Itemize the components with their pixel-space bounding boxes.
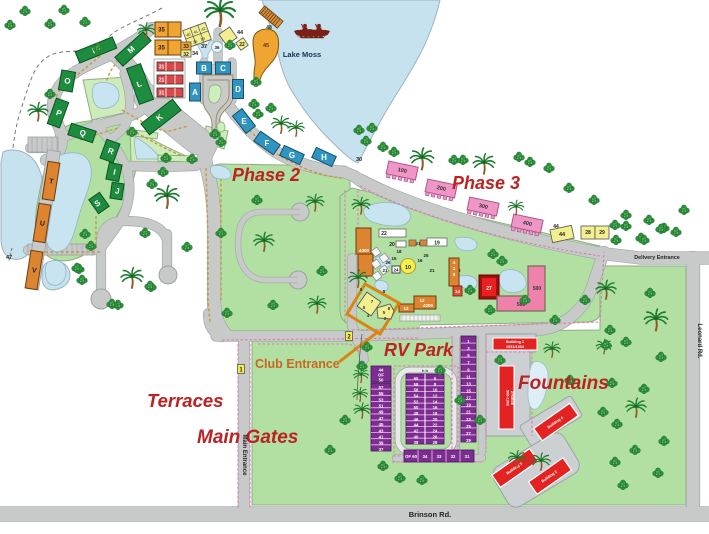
svg-text:28: 28 bbox=[433, 440, 438, 445]
svg-text:31: 31 bbox=[159, 91, 165, 97]
svg-text:Phase 3: Phase 3 bbox=[452, 173, 520, 193]
svg-text:58: 58 bbox=[414, 382, 419, 387]
svg-text:Club Entrance: Club Entrance bbox=[255, 357, 340, 371]
svg-text:20: 20 bbox=[433, 417, 438, 422]
svg-text:Fountains: Fountains bbox=[518, 373, 609, 394]
svg-text:53: 53 bbox=[379, 397, 384, 402]
svg-text:D: D bbox=[235, 85, 241, 94]
svg-text:11: 11 bbox=[466, 374, 471, 379]
svg-text:14: 14 bbox=[433, 399, 438, 404]
svg-text:46: 46 bbox=[414, 417, 419, 422]
svg-text:B: B bbox=[201, 64, 207, 73]
svg-text:Phase 2: Phase 2 bbox=[232, 165, 300, 185]
svg-text:500-1302: 500-1302 bbox=[506, 390, 510, 406]
svg-text:48: 48 bbox=[414, 411, 419, 416]
svg-text:37: 37 bbox=[201, 44, 207, 50]
svg-text:27: 27 bbox=[466, 431, 471, 436]
svg-text:G: G bbox=[289, 151, 295, 160]
svg-text:31: 31 bbox=[159, 65, 165, 71]
svg-text:42: 42 bbox=[414, 428, 419, 433]
svg-text:17: 17 bbox=[466, 396, 471, 401]
svg-text:60: 60 bbox=[414, 376, 419, 381]
svg-text:18: 18 bbox=[433, 411, 438, 416]
svg-text:57: 57 bbox=[379, 385, 384, 390]
svg-text:44: 44 bbox=[237, 30, 244, 36]
svg-text:56: 56 bbox=[414, 388, 419, 393]
svg-text:500: 500 bbox=[533, 286, 542, 292]
svg-text:44: 44 bbox=[559, 232, 566, 238]
svg-text:47: 47 bbox=[379, 416, 384, 421]
svg-text:21: 21 bbox=[159, 78, 165, 84]
svg-text:C: C bbox=[220, 64, 226, 73]
svg-text:29: 29 bbox=[466, 438, 471, 443]
svg-text:32: 32 bbox=[183, 52, 189, 58]
svg-text:45: 45 bbox=[379, 422, 384, 427]
svg-text:24: 24 bbox=[393, 268, 399, 273]
svg-text:27: 27 bbox=[486, 286, 492, 292]
svg-text:35: 35 bbox=[158, 28, 165, 34]
svg-text:21: 21 bbox=[415, 241, 421, 246]
svg-text:33: 33 bbox=[183, 44, 189, 50]
svg-text:Brinson Rd.: Brinson Rd. bbox=[409, 510, 452, 519]
svg-text:h h: h h bbox=[422, 368, 429, 373]
svg-text:51: 51 bbox=[379, 404, 384, 409]
svg-text:Building 1: Building 1 bbox=[506, 340, 524, 344]
svg-text:E: E bbox=[241, 117, 247, 126]
svg-text:RV Park: RV Park bbox=[384, 340, 454, 360]
svg-text:10: 10 bbox=[405, 265, 411, 271]
svg-text:10: 10 bbox=[433, 388, 438, 393]
svg-text:44: 44 bbox=[553, 224, 559, 230]
svg-text:16: 16 bbox=[417, 258, 423, 263]
svg-text:26: 26 bbox=[385, 260, 391, 265]
svg-text:F: F bbox=[265, 139, 270, 148]
svg-text:12: 12 bbox=[433, 393, 438, 398]
svg-text:24: 24 bbox=[433, 428, 438, 433]
svg-text:36: 36 bbox=[214, 45, 220, 50]
svg-text:44: 44 bbox=[414, 423, 419, 428]
svg-text:OF 60: OF 60 bbox=[405, 454, 418, 459]
svg-text:Lake Moss: Lake Moss bbox=[283, 50, 321, 59]
svg-text:31: 31 bbox=[465, 454, 470, 459]
svg-text:Main Entrance: Main Entrance bbox=[241, 434, 247, 476]
svg-text:34: 34 bbox=[192, 51, 199, 57]
svg-text:22: 22 bbox=[433, 423, 438, 428]
svg-text:19: 19 bbox=[466, 403, 471, 408]
svg-text:32: 32 bbox=[451, 454, 456, 459]
svg-text:U: U bbox=[39, 220, 45, 228]
svg-text:21: 21 bbox=[466, 410, 471, 415]
svg-text:41: 41 bbox=[379, 434, 384, 439]
svg-text:4300: 4300 bbox=[359, 248, 370, 253]
svg-text:39: 39 bbox=[379, 441, 384, 446]
svg-text:4200: 4200 bbox=[423, 303, 434, 308]
svg-text:14: 14 bbox=[455, 289, 461, 294]
svg-text:25: 25 bbox=[466, 424, 471, 429]
svg-text:19: 19 bbox=[434, 241, 440, 247]
svg-text:13: 13 bbox=[466, 381, 471, 386]
svg-text:21: 21 bbox=[429, 268, 435, 273]
svg-text:15: 15 bbox=[466, 388, 471, 393]
svg-text:47: 47 bbox=[6, 255, 12, 261]
svg-text:Leonard Rd.: Leonard Rd. bbox=[696, 323, 702, 358]
svg-text:23: 23 bbox=[466, 417, 471, 422]
svg-text:A: A bbox=[192, 88, 198, 97]
svg-text:13: 13 bbox=[403, 306, 409, 311]
svg-text:38: 38 bbox=[414, 440, 419, 445]
svg-text:H: H bbox=[321, 153, 327, 162]
svg-text:55: 55 bbox=[379, 391, 384, 396]
svg-text:28: 28 bbox=[585, 230, 591, 236]
svg-text:54: 54 bbox=[414, 393, 419, 398]
svg-text:Terraces: Terraces bbox=[147, 390, 223, 411]
svg-text:50: 50 bbox=[414, 405, 419, 410]
svg-text:45: 45 bbox=[263, 43, 269, 49]
svg-text:22: 22 bbox=[239, 42, 245, 48]
svg-text:50: 50 bbox=[379, 378, 384, 383]
svg-text:15: 15 bbox=[391, 256, 397, 261]
svg-text:26: 26 bbox=[433, 434, 438, 439]
svg-text:1531/1304: 1531/1304 bbox=[506, 345, 525, 349]
svg-text:33: 33 bbox=[437, 454, 442, 459]
svg-text:29: 29 bbox=[599, 230, 605, 236]
svg-text:34: 34 bbox=[423, 454, 428, 459]
svg-text:37: 37 bbox=[379, 447, 384, 452]
svg-text:25: 25 bbox=[423, 253, 429, 258]
svg-text:30: 30 bbox=[356, 157, 362, 163]
svg-text:22: 22 bbox=[381, 231, 387, 237]
svg-text:35: 35 bbox=[158, 46, 165, 52]
svg-text:2?0/B0E: 2?0/B0E bbox=[510, 391, 514, 406]
svg-text:48: 48 bbox=[266, 25, 272, 31]
svg-text:18: 18 bbox=[396, 249, 402, 254]
svg-text:52: 52 bbox=[414, 399, 419, 404]
svg-text:40: 40 bbox=[414, 434, 419, 439]
svg-text:16: 16 bbox=[433, 405, 438, 410]
svg-text:49: 49 bbox=[379, 410, 384, 415]
svg-text:43: 43 bbox=[379, 428, 384, 433]
svg-text:20: 20 bbox=[389, 242, 395, 248]
svg-text:Delivery Entrance: Delivery Entrance bbox=[634, 255, 680, 261]
svg-text:21: 21 bbox=[382, 268, 388, 273]
